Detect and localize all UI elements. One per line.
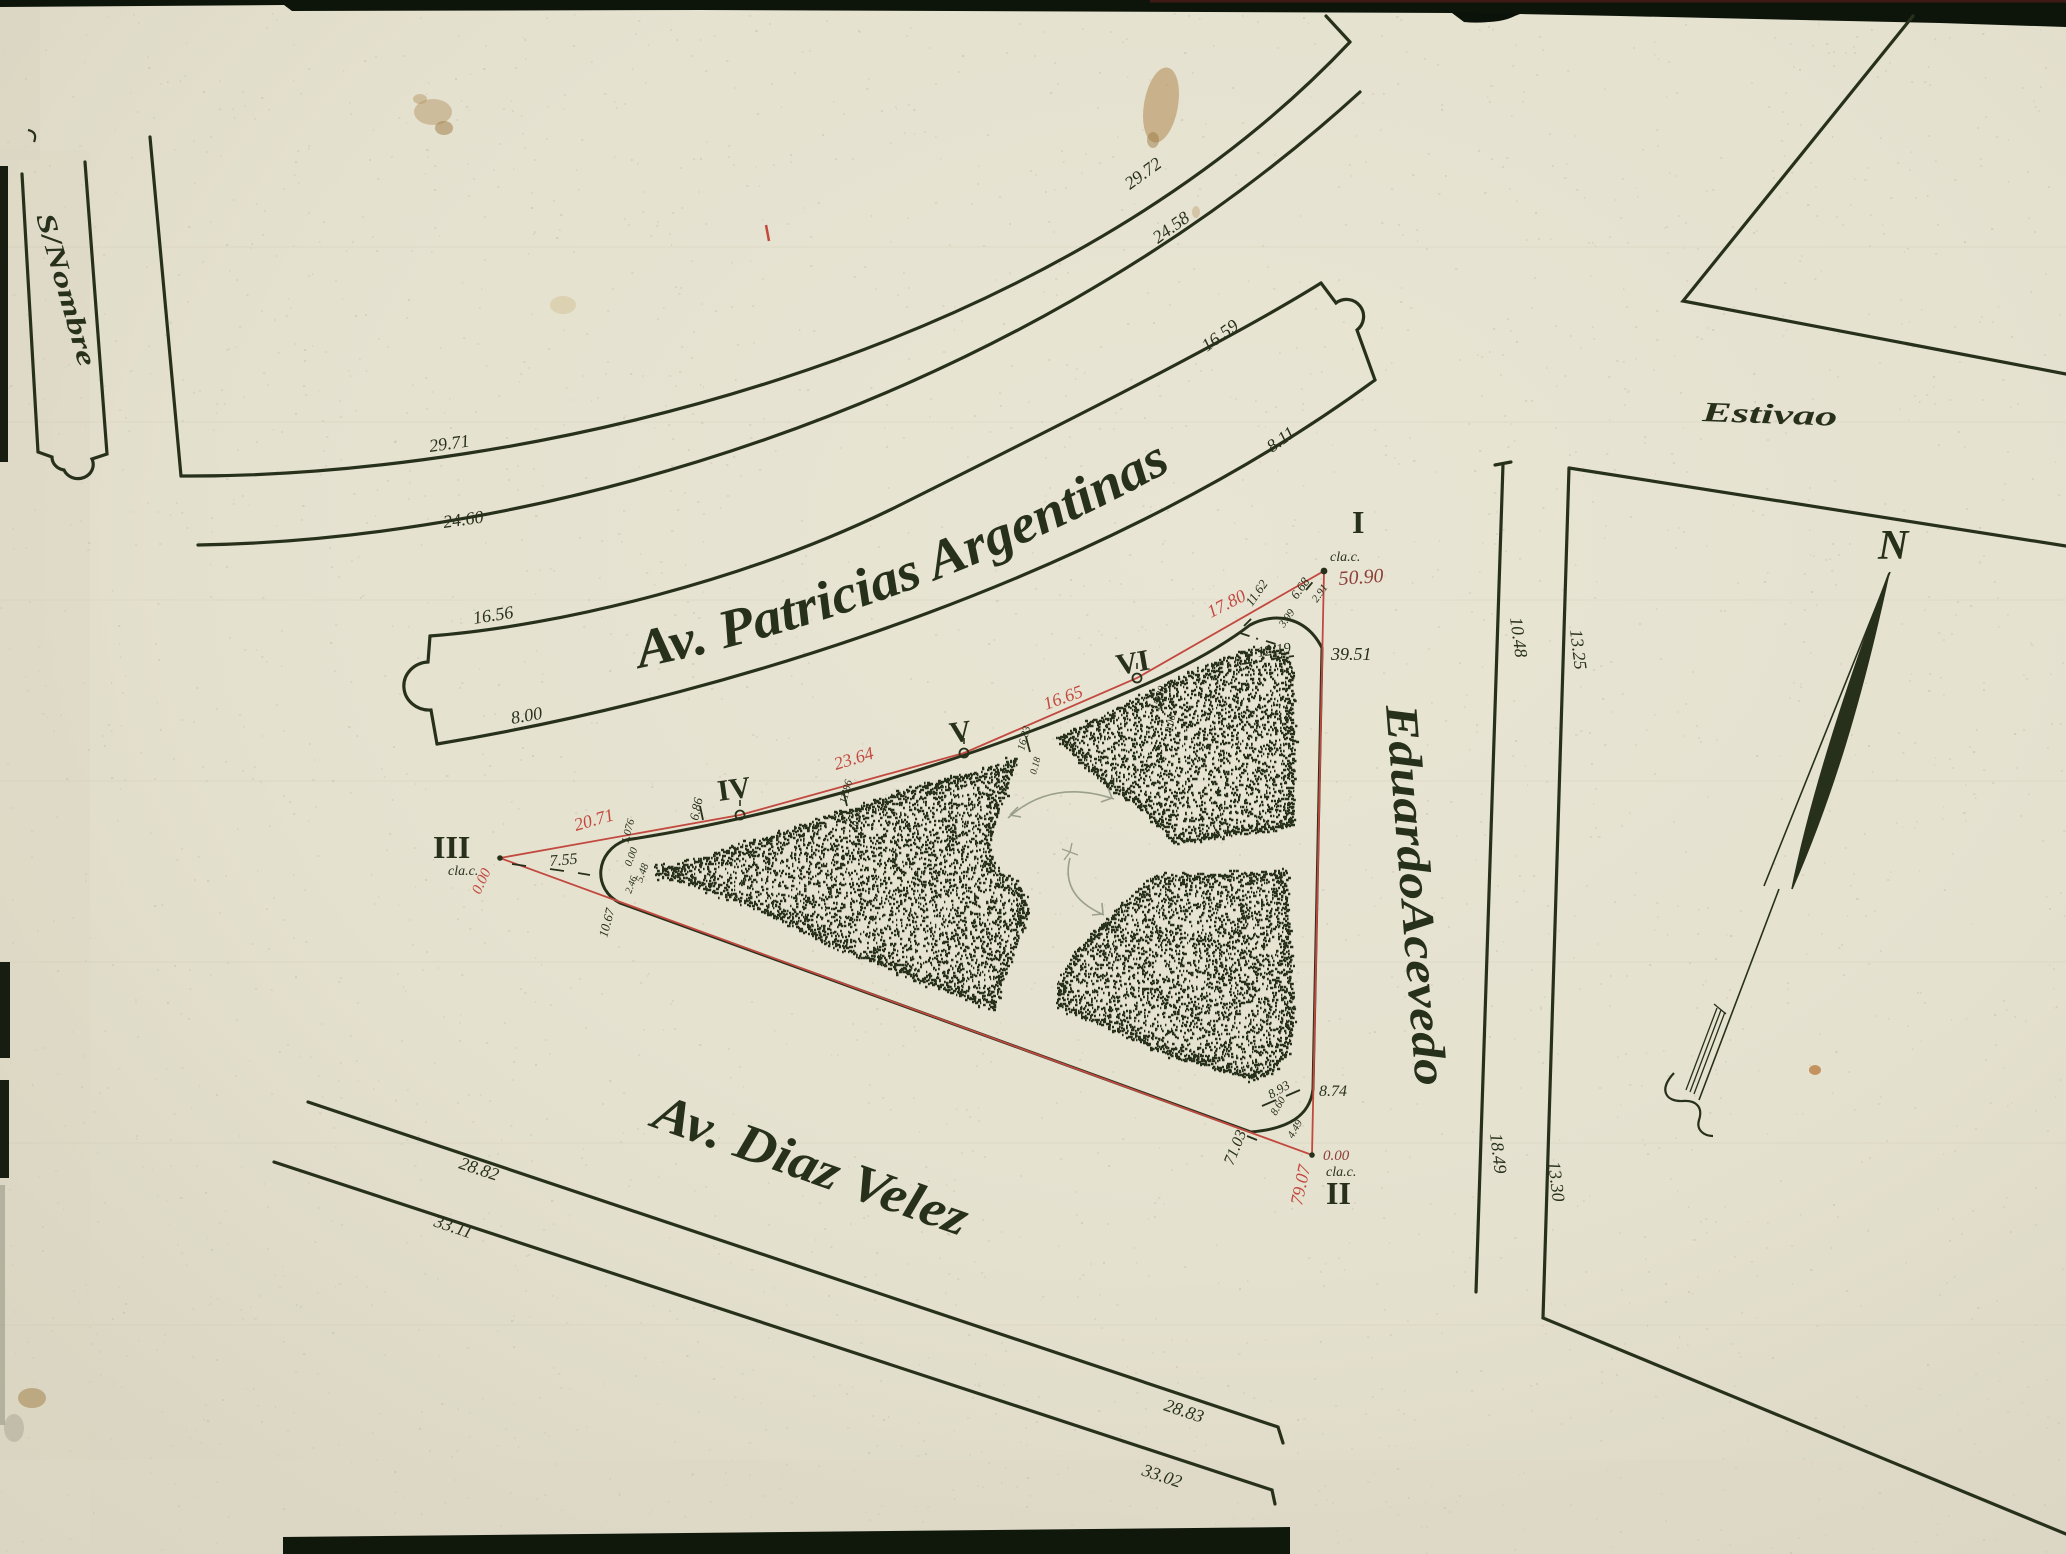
svg-text:N: N: [1877, 523, 1910, 569]
svg-text:IV: IV: [715, 771, 753, 808]
svg-text:Estivao: Estivao: [1700, 397, 1838, 433]
svg-text:cla.c.: cla.c.: [1326, 1165, 1356, 1180]
svg-text:III: III: [433, 829, 470, 865]
svg-text:cla.c.: cla.c.: [448, 864, 478, 879]
svg-text:7.55: 7.55: [549, 851, 578, 870]
svg-text:8.74: 8.74: [1319, 1083, 1347, 1100]
svg-text:I: I: [1352, 504, 1364, 540]
svg-text:0.00: 0.00: [1323, 1148, 1350, 1164]
svg-text:50.90: 50.90: [1338, 565, 1384, 590]
svg-text:II: II: [1326, 1175, 1351, 1211]
svg-text:VI: VI: [1113, 644, 1152, 682]
svg-text:39.51: 39.51: [1330, 644, 1372, 664]
svg-text:cla.c.: cla.c.: [1330, 550, 1360, 565]
